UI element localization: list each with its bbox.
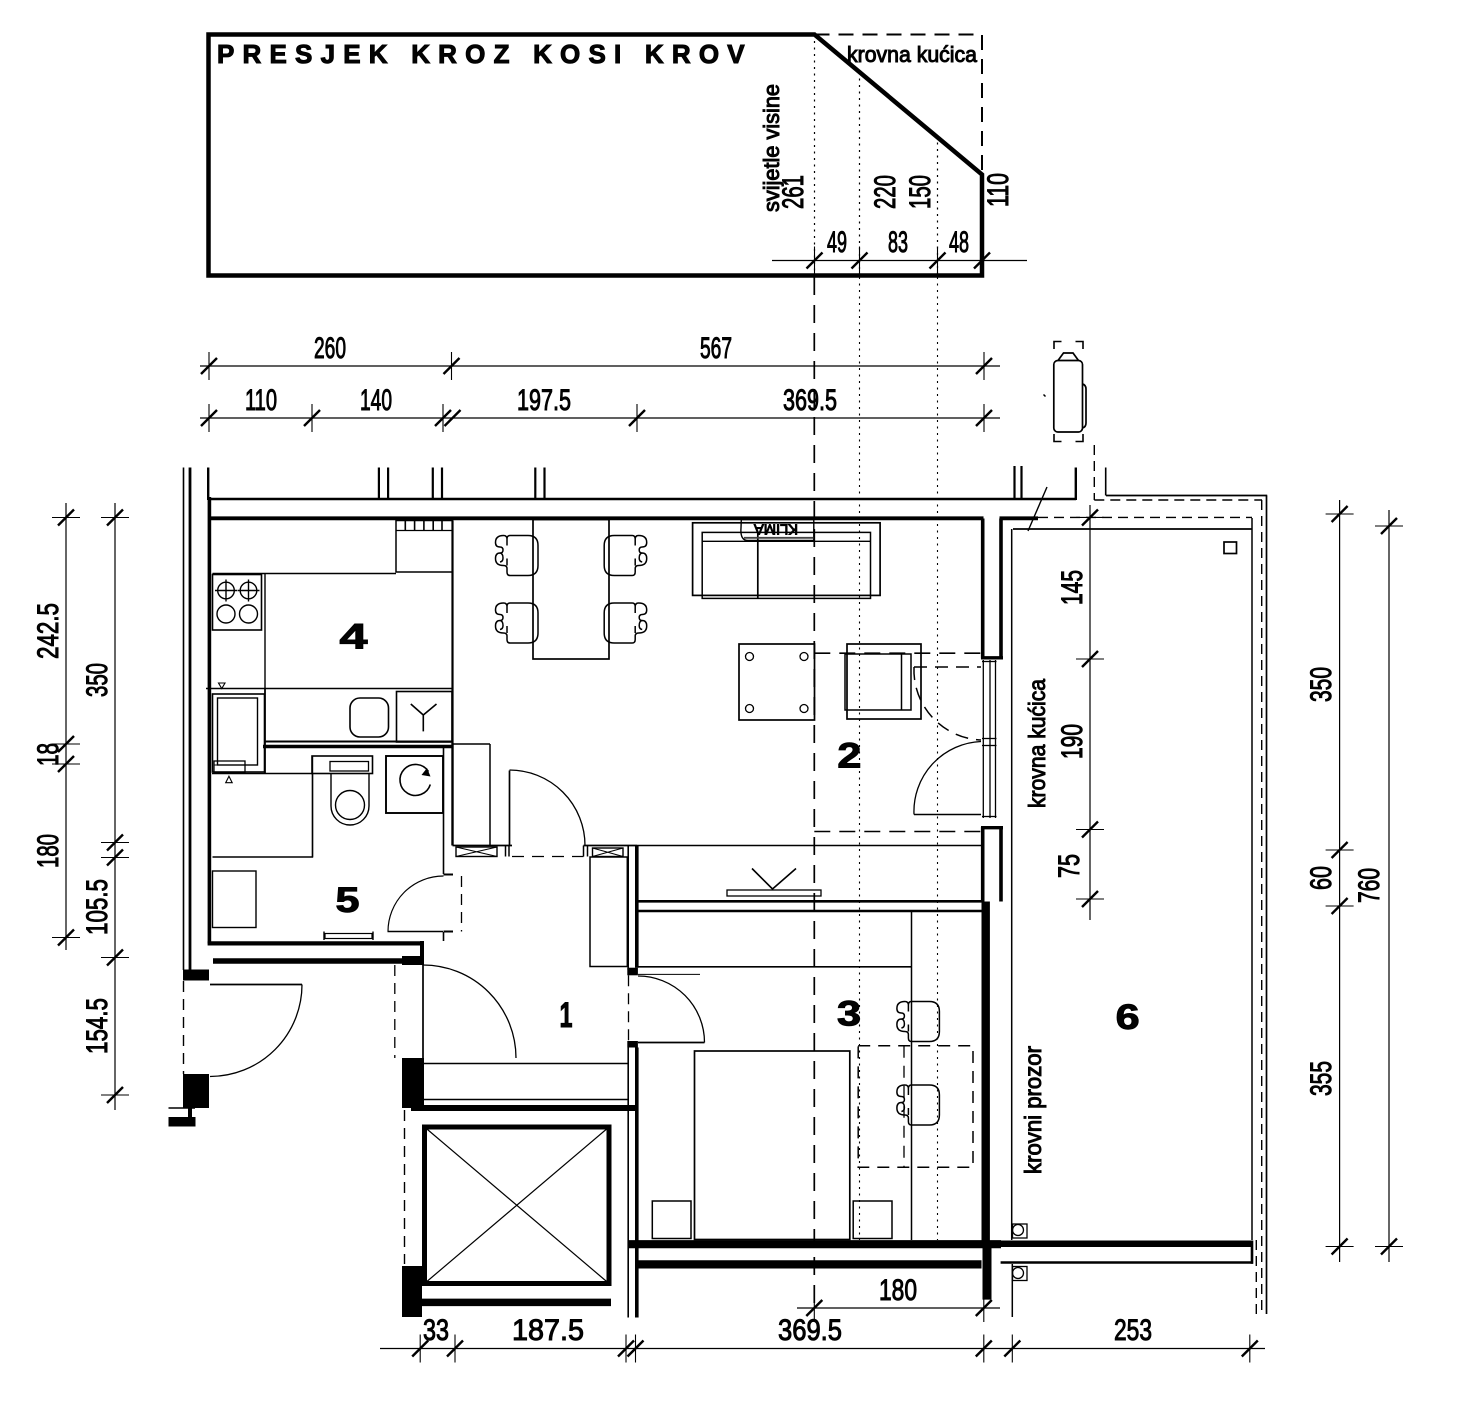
svg-text:369.5: 369.5	[778, 1314, 842, 1347]
svg-text:krovna kućica: krovna kućica	[847, 42, 978, 67]
svg-text:krovna kućica: krovna kućica	[1024, 679, 1050, 808]
svg-text:180: 180	[32, 834, 65, 868]
svg-text:190: 190	[1056, 724, 1089, 759]
svg-text:154.5: 154.5	[81, 998, 114, 1054]
svg-text:75: 75	[1053, 854, 1086, 878]
svg-text:krovni prozor: krovni prozor	[1020, 1046, 1046, 1174]
svg-text:33: 33	[423, 1314, 449, 1347]
svg-text:18: 18	[32, 743, 65, 766]
svg-text:83: 83	[888, 226, 908, 259]
svg-text:140: 140	[360, 384, 392, 417]
svg-text:1: 1	[560, 996, 573, 1035]
svg-text:105.5: 105.5	[81, 879, 114, 935]
svg-text:355: 355	[1305, 1061, 1338, 1096]
svg-text:242.5: 242.5	[32, 603, 65, 659]
svg-text:197.5: 197.5	[517, 384, 571, 417]
svg-text:60: 60	[1305, 866, 1338, 890]
svg-text:220: 220	[869, 175, 902, 209]
svg-text:PRESJEK KROZ KOSI KROV: PRESJEK KROZ KOSI KROV	[217, 39, 753, 69]
svg-text:49: 49	[827, 226, 847, 259]
svg-text:110: 110	[982, 173, 1015, 207]
svg-text:350: 350	[1305, 667, 1338, 702]
svg-text:187.5: 187.5	[512, 1314, 584, 1347]
svg-text:369.5: 369.5	[783, 384, 837, 417]
svg-text:180: 180	[879, 1274, 917, 1307]
svg-text:4: 4	[340, 618, 369, 657]
svg-text:760: 760	[1353, 868, 1386, 903]
svg-text:260: 260	[314, 332, 346, 365]
svg-text:KLIMA: KLIMA	[754, 521, 798, 538]
svg-text:5: 5	[336, 881, 360, 920]
svg-text:350: 350	[81, 663, 114, 697]
svg-text:253: 253	[1114, 1314, 1152, 1347]
svg-text:150: 150	[904, 175, 937, 209]
svg-text:48: 48	[949, 226, 969, 259]
svg-text:2: 2	[837, 737, 861, 776]
svg-text:110: 110	[245, 384, 277, 417]
svg-text:6: 6	[1116, 998, 1140, 1037]
svg-text:567: 567	[700, 332, 732, 365]
svg-text:3: 3	[837, 995, 861, 1034]
svg-text:145: 145	[1056, 570, 1089, 605]
svg-text:261: 261	[777, 175, 810, 209]
